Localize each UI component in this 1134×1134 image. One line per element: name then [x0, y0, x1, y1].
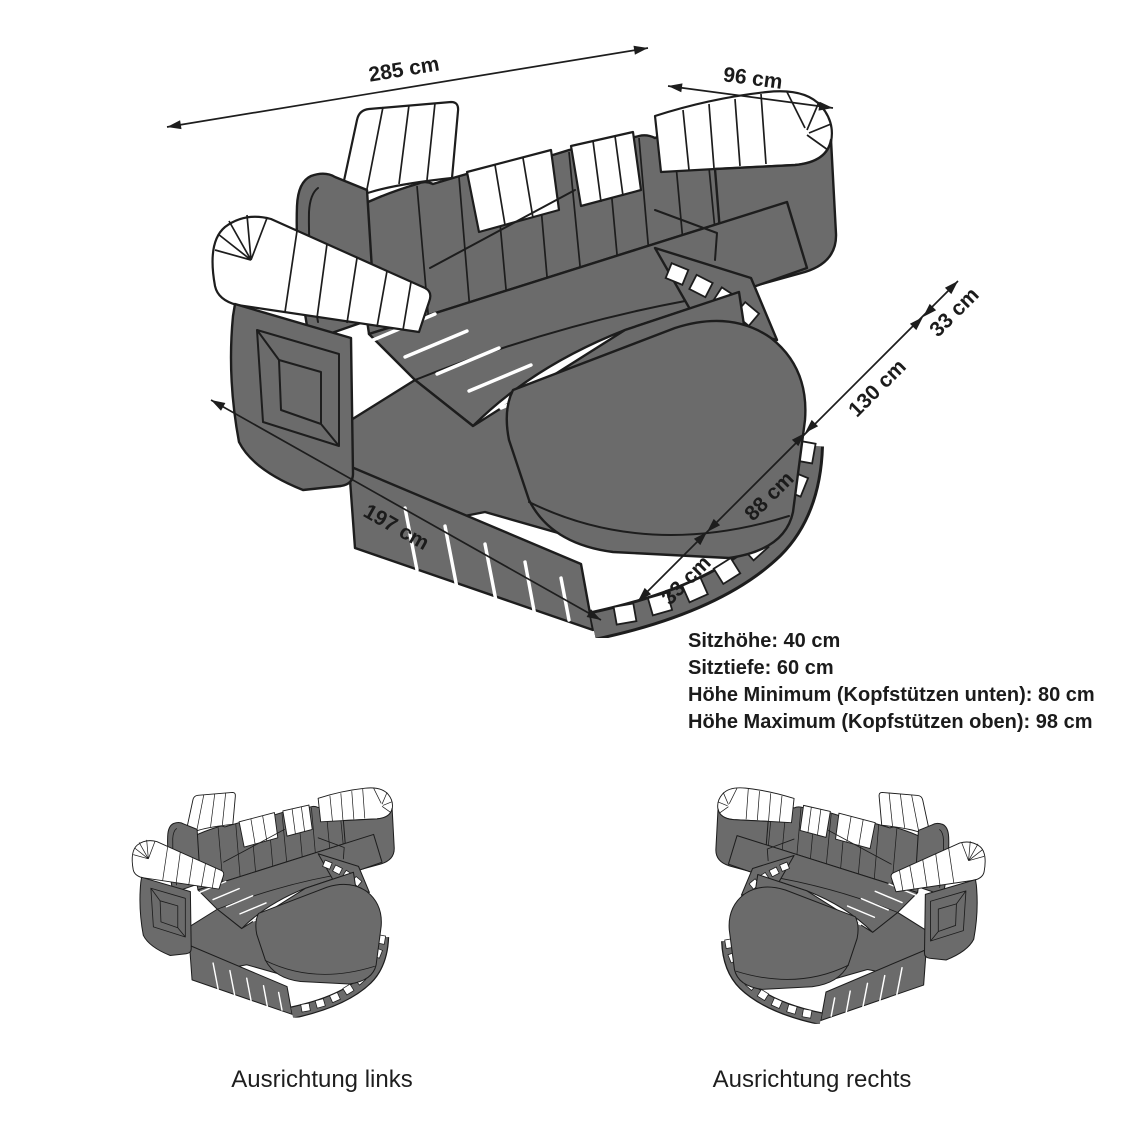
dimension-label-segment-130: 130 cm — [844, 355, 911, 422]
dimension-arrowheads — [167, 46, 958, 620]
dimension-label-segment-33-top: 33 cm — [925, 283, 983, 341]
product-dimension-diagram: 285 cm 96 cm 33 cm 88 cm 130 cm 33 cm 19… — [0, 0, 1134, 1134]
sofa-variant-right-illustration — [712, 782, 1010, 1024]
dimension-label-arm-depth: 96 cm — [722, 63, 784, 94]
spec-line-seat-depth: Sitztiefe: 60 cm — [688, 655, 1095, 682]
sofa-variant-left-illustration — [108, 782, 398, 1018]
dimension-label-segment-88: 88 cm — [740, 467, 798, 525]
spec-line-seat-height: Sitzhöhe: 40 cm — [688, 628, 1095, 655]
dimension-label-segment-33-bottom: 33 cm — [657, 551, 715, 609]
dimension-label-chaise-length: 197 cm — [360, 500, 433, 555]
dimension-lines — [167, 48, 958, 620]
dimension-label-back-width: 285 cm — [367, 52, 441, 86]
spec-line-height-max: Höhe Maximum (Kopfstützen oben): 98 cm — [688, 709, 1095, 736]
caption-orientation-left: Ausrichtung links — [231, 1066, 412, 1094]
caption-orientation-right: Ausrichtung rechts — [713, 1066, 912, 1094]
spec-text-block: Sitzhöhe: 40 cm Sitztiefe: 60 cm Höhe Mi… — [688, 628, 1095, 736]
spec-line-height-min: Höhe Minimum (Kopfstützen unten): 80 cm — [688, 682, 1095, 709]
